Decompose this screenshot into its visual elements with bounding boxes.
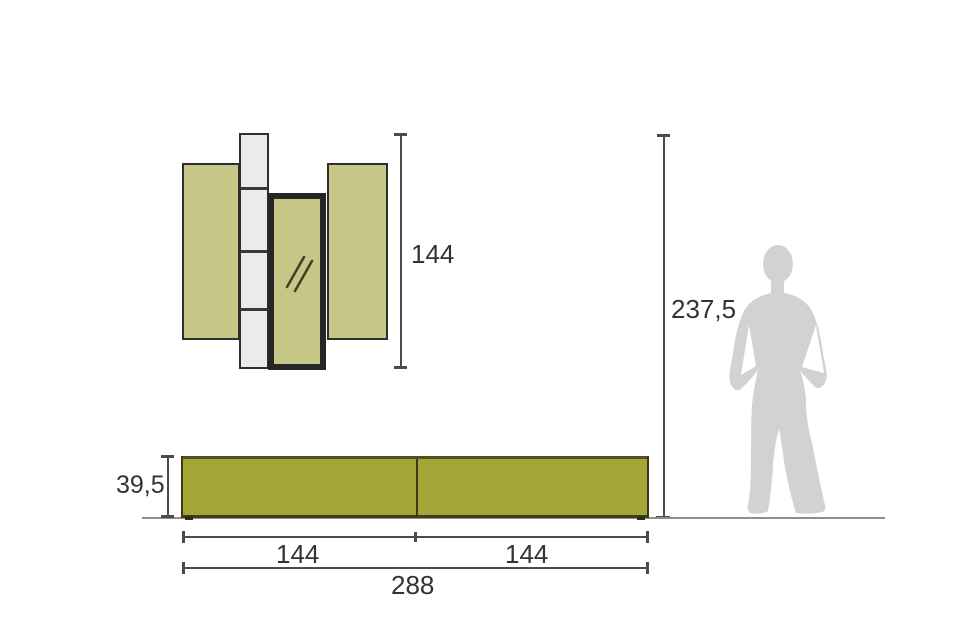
base-right-width-label: 144 — [505, 541, 548, 568]
shelf-column — [239, 133, 269, 369]
wall-height-label: 144 — [411, 241, 454, 268]
base-cabinet-bottom-edge — [183, 515, 647, 518]
dimension-tick — [646, 531, 649, 543]
cabinet-foot — [185, 516, 193, 520]
mirror-glint-icon — [274, 199, 320, 364]
mirror-door-cabinet — [268, 193, 326, 370]
dimension-cap — [394, 133, 407, 136]
shelf-divider — [241, 308, 267, 311]
shelf-divider — [241, 187, 267, 190]
total-height-label: 237,5 — [671, 296, 736, 323]
base-cabinet-top-edge — [183, 456, 647, 459]
dimension-line-base-height — [167, 456, 169, 518]
cabinet-foot — [637, 516, 645, 520]
base-total-width-label: 288 — [391, 572, 434, 599]
base-height-label: 39,5 — [116, 472, 165, 498]
dimension-line-base-total — [183, 567, 648, 569]
diagram-canvas: 144 237,5 39,5 144 144 288 — [0, 0, 970, 629]
dimension-cap — [161, 515, 174, 518]
shelf-divider — [241, 250, 267, 253]
dimension-tick — [182, 531, 185, 543]
base-cabinet-divider — [416, 459, 418, 516]
wall-panel-right — [327, 163, 388, 340]
dimension-line-wall-height — [400, 134, 402, 368]
dimension-tick — [414, 532, 417, 542]
wall-panel-left — [182, 163, 240, 340]
dimension-cap — [161, 455, 174, 458]
base-cabinet — [181, 456, 649, 518]
base-left-width-label: 144 — [276, 541, 319, 568]
dimension-tick — [646, 562, 649, 574]
dimension-line-total-height — [663, 135, 665, 518]
dimension-tick — [182, 562, 185, 574]
female-silhouette — [728, 243, 838, 518]
dimension-cap — [394, 366, 407, 369]
dimension-cap — [657, 134, 670, 137]
